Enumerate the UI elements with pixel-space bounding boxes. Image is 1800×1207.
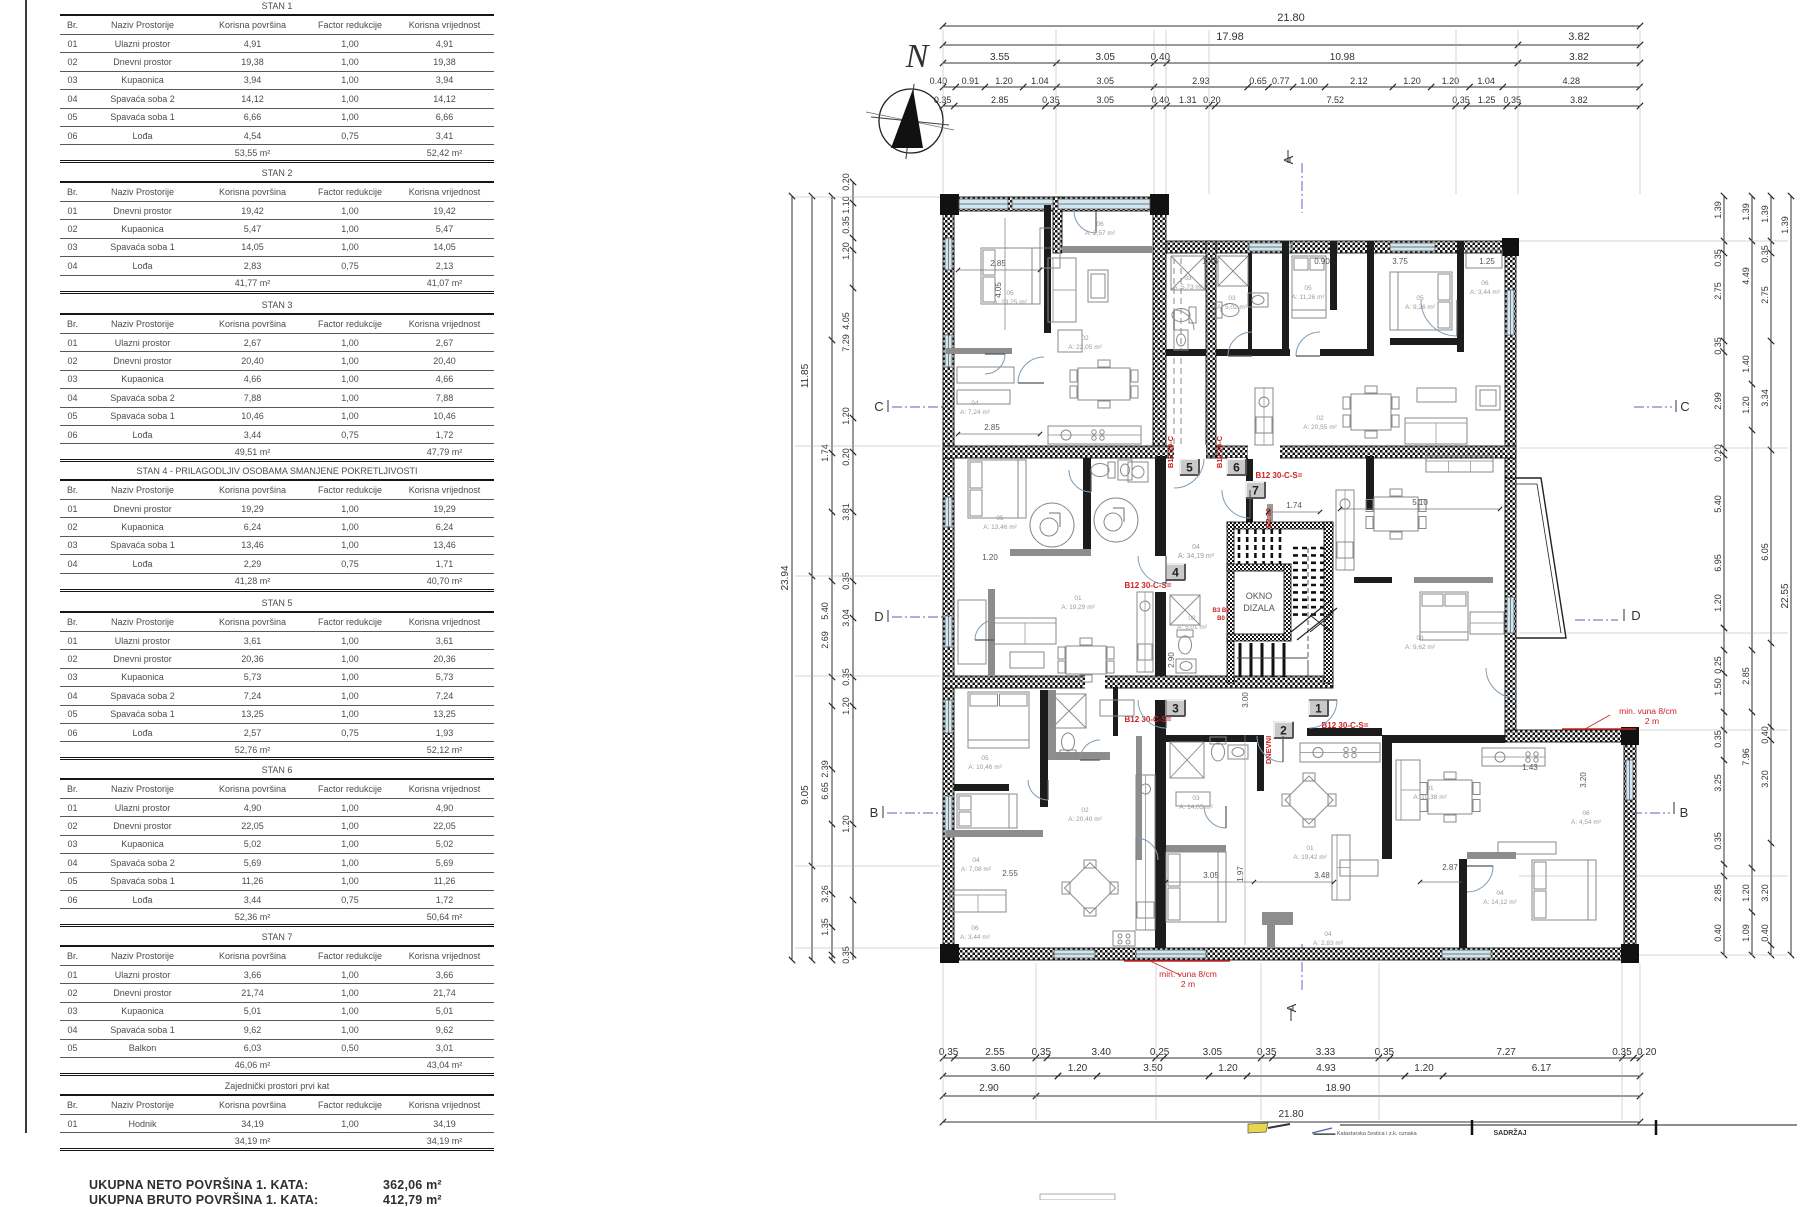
- svg-text:1.20: 1.20: [1403, 76, 1421, 86]
- svg-text:A: 14,12 m²: A: 14,12 m²: [1483, 899, 1517, 906]
- svg-text:2.85: 2.85: [991, 95, 1009, 105]
- svg-text:B0: B0: [1217, 616, 1225, 622]
- svg-text:1.10: 1.10: [841, 196, 851, 214]
- svg-text:3.20: 3.20: [1760, 770, 1770, 788]
- svg-text:2.55: 2.55: [985, 1047, 1005, 1058]
- svg-text:2.99: 2.99: [1713, 392, 1723, 410]
- svg-text:3.00: 3.00: [1241, 692, 1250, 708]
- svg-text:6: 6: [1233, 461, 1240, 475]
- svg-text:0.40: 0.40: [1713, 924, 1723, 942]
- svg-text:3.60: 3.60: [991, 1063, 1011, 1074]
- svg-text:5.40: 5.40: [820, 602, 830, 620]
- svg-text:1.20: 1.20: [1218, 1063, 1238, 1074]
- svg-text:02: 02: [1081, 335, 1089, 342]
- svg-text:1.04: 1.04: [1477, 76, 1495, 86]
- svg-text:1.39: 1.39: [1741, 203, 1751, 221]
- svg-text:3.04: 3.04: [841, 609, 851, 627]
- svg-text:A: 7,24 m²: A: 7,24 m²: [960, 409, 991, 416]
- svg-text:0.35: 0.35: [841, 572, 851, 590]
- svg-text:0.35: 0.35: [1503, 95, 1521, 105]
- svg-text:A: 4,54 m²: A: 4,54 m²: [1571, 819, 1602, 826]
- svg-text:A: 3,44 m²: A: 3,44 m²: [960, 934, 991, 941]
- svg-text:A: 14,05 m²: A: 14,05 m²: [1179, 804, 1213, 811]
- svg-text:11.85: 11.85: [800, 363, 811, 388]
- svg-text:A: 5,02 m²: A: 5,02 m²: [1217, 304, 1248, 311]
- svg-text:04: 04: [1324, 931, 1332, 938]
- svg-text:0.77: 0.77: [1272, 76, 1290, 86]
- svg-text:3.50: 3.50: [1143, 1063, 1163, 1074]
- svg-text:02: 02: [1081, 807, 1089, 814]
- svg-text:1.46: 1.46: [1202, 257, 1218, 266]
- svg-text:06: 06: [1582, 810, 1590, 817]
- svg-text:1.20: 1.20: [841, 242, 851, 260]
- svg-text:6.05: 6.05: [1760, 543, 1770, 561]
- svg-text:05: 05: [1006, 290, 1014, 297]
- svg-text:A: 7,08 m²: A: 7,08 m²: [961, 866, 992, 873]
- svg-text:D: D: [874, 609, 883, 624]
- svg-text:1.20: 1.20: [1713, 594, 1723, 612]
- svg-text:1.25: 1.25: [1479, 257, 1495, 266]
- svg-text:N: N: [905, 38, 931, 75]
- svg-text:21.80: 21.80: [1277, 12, 1305, 24]
- svg-text:A: 13,46 m²: A: 13,46 m²: [983, 524, 1017, 531]
- svg-text:0.20: 0.20: [1203, 95, 1221, 105]
- svg-text:2 m: 2 m: [1181, 979, 1195, 989]
- svg-text:0.40: 0.40: [1152, 95, 1170, 105]
- svg-text:SADRŽAJ: SADRŽAJ: [1493, 1128, 1526, 1137]
- svg-text:4.05: 4.05: [994, 282, 1003, 298]
- svg-text:A: 2,57 m²: A: 2,57 m²: [1085, 230, 1116, 237]
- svg-text:03: 03: [1184, 275, 1192, 282]
- svg-text:4.93: 4.93: [1316, 1063, 1336, 1074]
- svg-text:A: 5,01 m²: A: 5,01 m²: [1177, 624, 1208, 631]
- svg-text:22.55: 22.55: [1780, 583, 1791, 608]
- svg-text:A: 2,83 m²: A: 2,83 m²: [1313, 940, 1344, 947]
- svg-text:A: 19,42 m²: A: 19,42 m²: [1293, 854, 1327, 861]
- svg-text:2.85: 2.85: [1713, 884, 1723, 902]
- svg-text:04: 04: [1192, 544, 1200, 551]
- svg-text:18.90: 18.90: [1325, 1083, 1350, 1094]
- svg-text:A: 10,46 m²: A: 10,46 m²: [968, 764, 1002, 771]
- svg-text:A: 19,29 m²: A: 19,29 m²: [1061, 604, 1095, 611]
- svg-text:6.65: 6.65: [820, 782, 830, 800]
- svg-text:B12 30-C: B12 30-C: [1166, 435, 1175, 468]
- svg-text:2.90: 2.90: [1167, 652, 1176, 668]
- svg-text:0.35: 0.35: [1713, 832, 1723, 850]
- svg-text:3.82: 3.82: [1568, 31, 1589, 43]
- svg-text:1.20: 1.20: [995, 76, 1013, 86]
- svg-text:C: C: [874, 399, 883, 414]
- svg-text:0.20: 0.20: [841, 173, 851, 191]
- svg-text:05: 05: [996, 515, 1004, 522]
- svg-text:1.39: 1.39: [1780, 216, 1790, 234]
- svg-text:1.35: 1.35: [820, 918, 830, 936]
- svg-text:1.43: 1.43: [1522, 763, 1538, 772]
- svg-text:0.25: 0.25: [1150, 1047, 1170, 1058]
- svg-text:A: 9,62 m²: A: 9,62 m²: [1405, 644, 1436, 651]
- svg-text:0.35: 0.35: [1032, 1047, 1052, 1058]
- svg-text:3.05: 3.05: [1203, 1047, 1223, 1058]
- svg-text:min. vuna 8/cm: min. vuna 8/cm: [1619, 706, 1677, 716]
- svg-text:3.34: 3.34: [1760, 389, 1770, 407]
- svg-text:1.40: 1.40: [1741, 355, 1751, 373]
- svg-text:B12 30-C: B12 30-C: [1215, 435, 1224, 468]
- svg-text:0.35: 0.35: [841, 216, 851, 234]
- svg-text:0.65: 0.65: [1249, 76, 1267, 86]
- svg-text:5.10: 5.10: [1412, 498, 1428, 507]
- svg-text:2 m: 2 m: [1645, 716, 1659, 726]
- svg-text:04: 04: [1496, 890, 1504, 897]
- svg-text:7.96: 7.96: [1741, 748, 1751, 766]
- svg-text:3.05: 3.05: [1096, 95, 1114, 105]
- svg-text:0.35: 0.35: [1042, 95, 1060, 105]
- svg-text:A: 19,38 m²: A: 19,38 m²: [1413, 794, 1447, 801]
- svg-text:1.39: 1.39: [1760, 205, 1770, 223]
- svg-text:03: 03: [1192, 795, 1200, 802]
- svg-text:C: C: [1680, 399, 1689, 414]
- svg-text:0.35: 0.35: [1375, 1047, 1395, 1058]
- svg-text:9.05: 9.05: [800, 785, 811, 805]
- svg-text:3.82: 3.82: [1570, 95, 1588, 105]
- svg-text:01: 01: [1074, 595, 1082, 602]
- svg-text:05: 05: [1416, 295, 1424, 302]
- svg-text:3: 3: [1172, 702, 1179, 716]
- svg-text:03: 03: [1416, 635, 1424, 642]
- svg-text:0.40: 0.40: [1760, 726, 1770, 744]
- svg-text:1.25: 1.25: [1478, 95, 1496, 105]
- svg-text:1.20: 1.20: [982, 553, 998, 562]
- svg-text:1.20: 1.20: [841, 697, 851, 715]
- svg-text:OKNO: OKNO: [1246, 591, 1273, 601]
- svg-text:7.29: 7.29: [841, 334, 851, 352]
- svg-text:2.85: 2.85: [984, 423, 1000, 432]
- svg-text:04: 04: [971, 400, 979, 407]
- svg-text:0.35: 0.35: [1713, 730, 1723, 748]
- svg-text:3.20: 3.20: [1579, 772, 1588, 788]
- svg-text:4: 4: [1172, 566, 1179, 580]
- svg-text:0.35: 0.35: [939, 1047, 959, 1058]
- svg-text:B12 30-C-S=: B12 30-C-S=: [1125, 581, 1172, 590]
- svg-text:6.17: 6.17: [1532, 1063, 1552, 1074]
- svg-text:2.75: 2.75: [1713, 282, 1723, 300]
- svg-text:02: 02: [1188, 615, 1196, 622]
- svg-text:A: 20,55 m²: A: 20,55 m²: [1303, 424, 1337, 431]
- svg-text:6.95: 6.95: [1713, 554, 1723, 572]
- svg-text:0.90: 0.90: [1314, 257, 1330, 266]
- svg-text:2.85: 2.85: [1741, 667, 1751, 685]
- svg-text:2.93: 2.93: [1192, 76, 1210, 86]
- svg-text:3.05: 3.05: [1096, 76, 1114, 86]
- svg-text:0.35: 0.35: [841, 668, 851, 686]
- svg-text:04: 04: [972, 857, 980, 864]
- svg-text:2.85: 2.85: [990, 259, 1006, 268]
- svg-text:B: B: [870, 805, 879, 820]
- svg-text:2.55: 2.55: [1002, 869, 1018, 878]
- svg-text:A: 11,26 m²: A: 11,26 m²: [1291, 294, 1325, 301]
- svg-text:1.74: 1.74: [1286, 501, 1302, 510]
- svg-text:0.35: 0.35: [1713, 337, 1723, 355]
- svg-text:0.40: 0.40: [1151, 52, 1171, 63]
- svg-text:0.35: 0.35: [1452, 95, 1470, 105]
- svg-text:05: 05: [981, 755, 989, 762]
- svg-text:1.20: 1.20: [1442, 76, 1460, 86]
- svg-text:0.20: 0.20: [841, 448, 851, 466]
- svg-text:1.20: 1.20: [1741, 396, 1751, 414]
- svg-text:3.05: 3.05: [1203, 871, 1219, 880]
- svg-text:1.50: 1.50: [1713, 678, 1723, 696]
- svg-text:B3 B0: B3 B0: [1212, 608, 1230, 614]
- svg-text:2: 2: [1280, 724, 1287, 738]
- svg-text:10.98: 10.98: [1330, 52, 1355, 63]
- svg-text:1.20: 1.20: [841, 815, 851, 833]
- svg-text:23.94: 23.94: [780, 565, 791, 590]
- svg-text:3.40: 3.40: [1092, 1047, 1112, 1058]
- svg-text:A: 22,05 m²: A: 22,05 m²: [1068, 344, 1102, 351]
- svg-text:1.04: 1.04: [1031, 76, 1049, 86]
- svg-text:1.39: 1.39: [1713, 201, 1723, 219]
- svg-text:A: 9,26 m²: A: 9,26 m²: [1405, 304, 1436, 311]
- svg-text:3.25: 3.25: [1713, 774, 1723, 792]
- svg-text:3.26: 3.26: [820, 885, 830, 903]
- svg-text:5.40: 5.40: [1713, 495, 1723, 513]
- svg-text:1.20: 1.20: [1068, 1063, 1088, 1074]
- svg-text:0.35: 0.35: [1257, 1047, 1277, 1058]
- svg-text:06: 06: [971, 925, 979, 932]
- svg-text:05: 05: [1304, 285, 1312, 292]
- svg-text:0.35: 0.35: [841, 946, 851, 964]
- svg-text:1.20: 1.20: [1741, 884, 1751, 902]
- svg-text:DIZALA: DIZALA: [1243, 603, 1275, 613]
- svg-text:7.52: 7.52: [1327, 95, 1345, 105]
- svg-text:2.90: 2.90: [979, 1083, 999, 1094]
- svg-text:1.00: 1.00: [1300, 76, 1318, 86]
- svg-text:3.48: 3.48: [1314, 871, 1330, 880]
- svg-text:3.81: 3.81: [841, 503, 851, 521]
- svg-text:A: 20,40 m²: A: 20,40 m²: [1068, 816, 1102, 823]
- svg-text:3.20: 3.20: [1760, 884, 1770, 902]
- svg-text:0.35: 0.35: [1713, 249, 1723, 267]
- svg-text:A: 5,73 m²: A: 5,73 m²: [1173, 284, 1204, 291]
- svg-text:2.87: 2.87: [1442, 863, 1458, 872]
- svg-text:3.75: 3.75: [1392, 257, 1408, 266]
- svg-text:1.74: 1.74: [820, 444, 830, 462]
- svg-text:4.49: 4.49: [1741, 267, 1751, 285]
- svg-text:B12 30-C-S=: B12 30-C-S=: [1256, 471, 1303, 480]
- svg-text:21.80: 21.80: [1278, 1109, 1303, 1120]
- svg-text:17.98: 17.98: [1216, 31, 1244, 43]
- svg-text:3.05: 3.05: [1096, 52, 1116, 63]
- svg-text:06: 06: [1481, 280, 1489, 287]
- svg-text:1: 1: [1315, 702, 1322, 716]
- svg-text:2.75: 2.75: [1760, 286, 1770, 304]
- svg-text:4.05: 4.05: [841, 312, 851, 330]
- svg-text:1.09: 1.09: [1741, 924, 1751, 942]
- svg-text:06: 06: [1096, 221, 1104, 228]
- svg-text:0.91: 0.91: [962, 76, 980, 86]
- svg-text:2.69: 2.69: [820, 631, 830, 649]
- svg-text:min. vuna 8/cm: min. vuna 8/cm: [1159, 969, 1217, 979]
- svg-text:5: 5: [1186, 461, 1193, 475]
- svg-text:B12 30-C-S=: B12 30-C-S=: [1322, 721, 1369, 730]
- svg-text:4.28: 4.28: [1562, 76, 1580, 86]
- svg-text:A: 34,19 m²: A: 34,19 m²: [1178, 553, 1215, 560]
- svg-text:3.33: 3.33: [1316, 1047, 1336, 1058]
- svg-text:1.20: 1.20: [1414, 1063, 1434, 1074]
- svg-text:A: 3,44 m²: A: 3,44 m²: [1470, 289, 1501, 296]
- svg-text:7: 7: [1252, 484, 1259, 498]
- svg-text:1.97: 1.97: [1236, 866, 1245, 882]
- svg-text:2.39: 2.39: [820, 760, 830, 778]
- svg-text:7.27: 7.27: [1496, 1047, 1516, 1058]
- svg-text:0.40: 0.40: [930, 76, 948, 86]
- svg-text:▬▬▬▬ Katastarska čestica i z.k: ▬▬▬▬ Katastarska čestica i z.k. oznaka: [1313, 1131, 1417, 1137]
- svg-text:A: 13,25 m²: A: 13,25 m²: [993, 299, 1027, 306]
- svg-text:02: 02: [1316, 415, 1324, 422]
- svg-text:2.12: 2.12: [1350, 76, 1368, 86]
- svg-text:B: B: [1680, 805, 1689, 820]
- svg-text:3.82: 3.82: [1569, 52, 1589, 63]
- svg-text:3.55: 3.55: [990, 52, 1010, 63]
- svg-text:D: D: [1631, 608, 1640, 623]
- svg-text:0.35: 0.35: [1760, 245, 1770, 263]
- svg-text:0.40: 0.40: [1760, 924, 1770, 942]
- svg-text:03: 03: [1228, 295, 1236, 302]
- svg-text:01: 01: [1426, 785, 1434, 792]
- svg-text:1.31: 1.31: [1179, 95, 1197, 105]
- svg-text:0.35: 0.35: [934, 95, 952, 105]
- svg-text:01: 01: [1306, 845, 1314, 852]
- svg-text:1.20: 1.20: [841, 407, 851, 425]
